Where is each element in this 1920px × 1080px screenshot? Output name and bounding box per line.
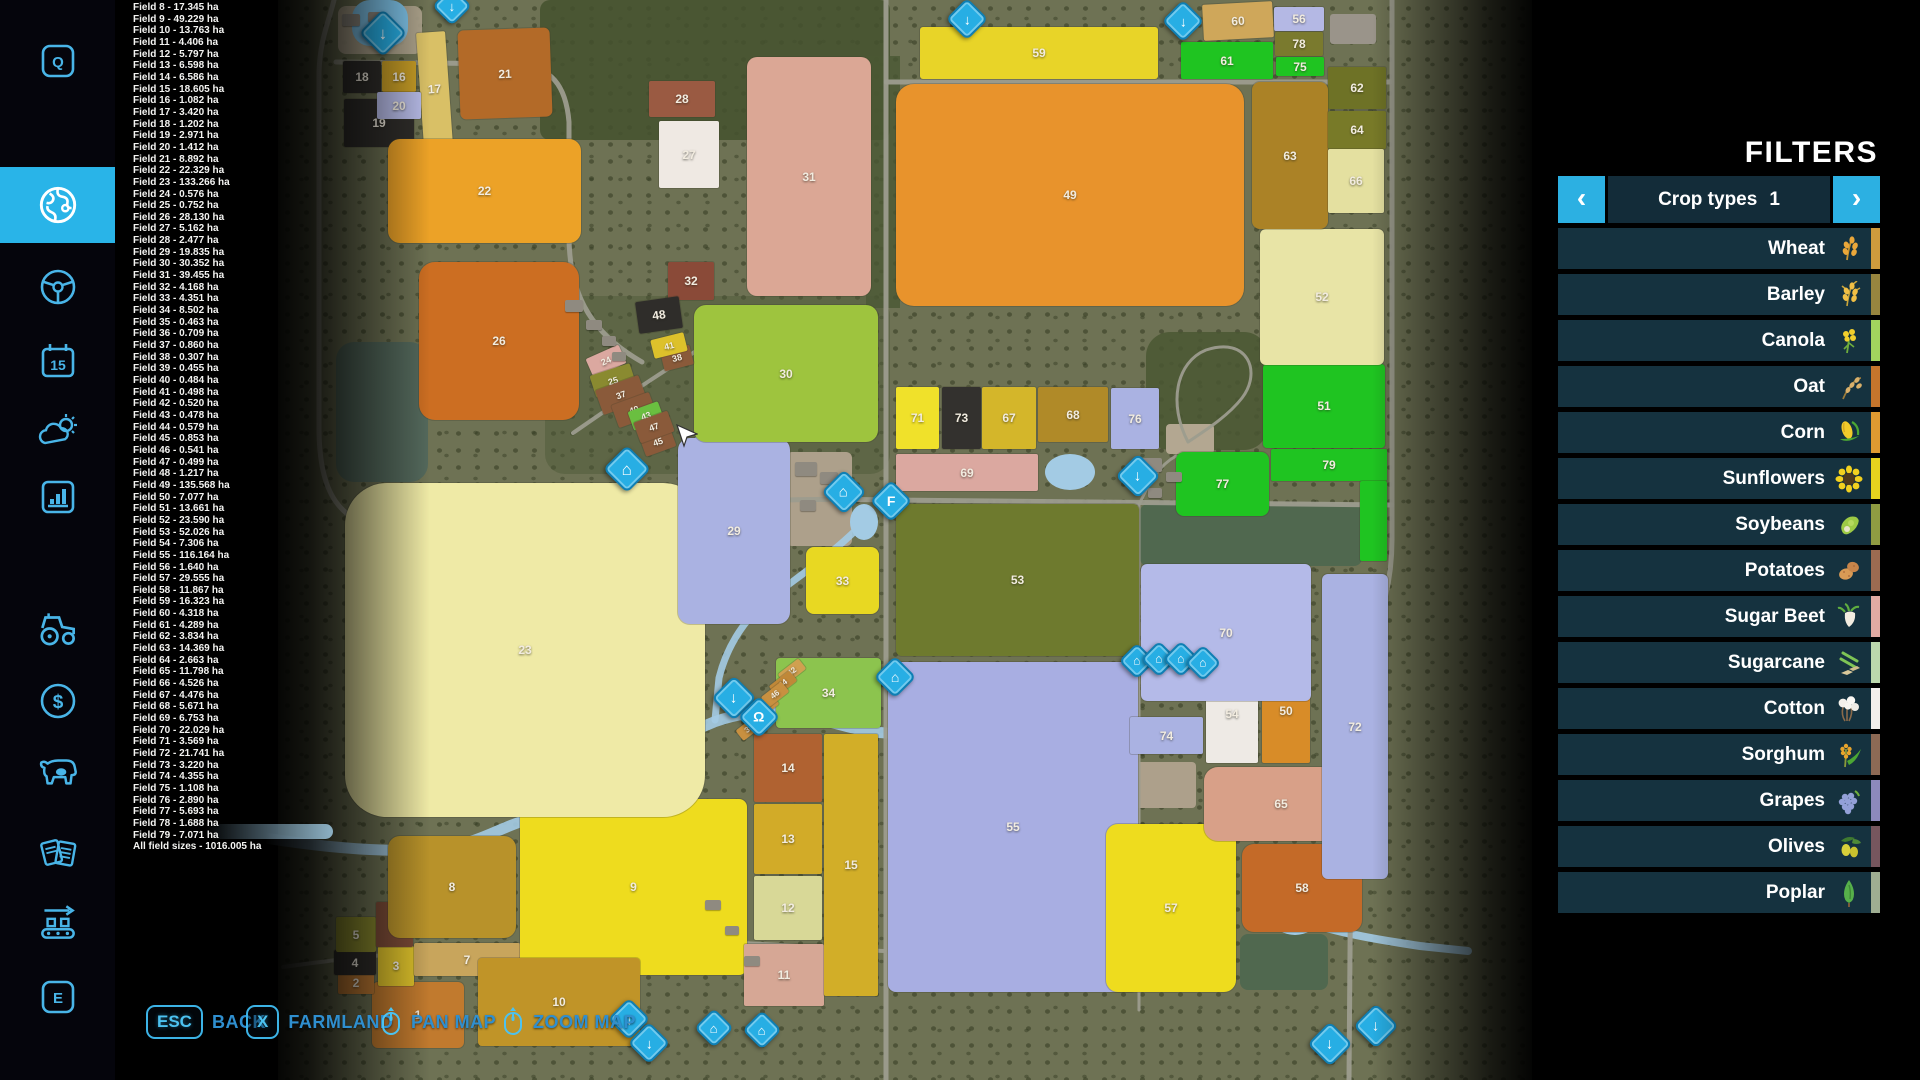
svg-text:15: 15 (50, 357, 66, 373)
map-field-53[interactable]: 53 (896, 504, 1139, 656)
map-field-61[interactable]: 61 (1181, 42, 1273, 79)
filter-row-oat[interactable]: Oat (1558, 366, 1880, 407)
map-field-11[interactable]: 11 (744, 944, 824, 1006)
field-size-item: Field 62 - 3.834 ha (133, 631, 261, 643)
field-number: 29 (678, 438, 790, 624)
crop-label: Sunflowers (1723, 468, 1825, 490)
map-field-51[interactable]: 51 (1263, 364, 1385, 448)
filter-row-soybeans[interactable]: Soybeans (1558, 504, 1880, 545)
building (705, 900, 721, 910)
crop-color-stripe (1871, 458, 1880, 499)
map-field-63[interactable]: 63 (1252, 82, 1328, 229)
marker-glyph: Ω (753, 710, 764, 724)
control-label: ZOOM MAP (533, 1012, 636, 1033)
field-number: 21 (457, 27, 552, 119)
field-size-item: Field 39 - 0.455 ha (133, 363, 261, 375)
field-number: 13 (754, 804, 822, 874)
calendar-icon: 15 (35, 338, 81, 384)
sidebar-item-hotkey-q[interactable]: Q (0, 30, 115, 92)
field-size-item: Field 58 - 11.867 ha (133, 585, 261, 597)
field-size-item: Field 16 - 1.082 ha (133, 95, 261, 107)
map-field-60[interactable]: 60 (1202, 1, 1274, 41)
field-size-item: Field 38 - 0.307 ha (133, 352, 261, 364)
field-size-item: Field 19 - 2.971 ha (133, 130, 261, 142)
sidebar-item-contracts[interactable] (0, 822, 115, 884)
field-number: 5 (336, 917, 376, 952)
field-size-item: Field 18 - 1.202 ha (133, 119, 261, 131)
crop-color-stripe (1871, 780, 1880, 821)
map-field[interactable] (1360, 481, 1387, 561)
field-size-list: Field 8 - 17.345 haField 9 - 49.229 haFi… (133, 2, 261, 853)
field-size-item: Field 30 - 30.352 ha (133, 258, 261, 270)
svg-text:Q: Q (52, 54, 64, 71)
pond (1045, 454, 1095, 490)
field-number: 71 (896, 387, 939, 449)
sugarcane-icon (1835, 649, 1863, 677)
map-field-15[interactable]: 15 (824, 734, 878, 996)
filter-category-label: Crop types (1658, 189, 1757, 211)
field-size-item: Field 9 - 49.229 ha (133, 14, 261, 26)
field-number: 26 (419, 262, 579, 420)
field-size-item: Field 53 - 52.026 ha (133, 527, 261, 539)
field-size-item: Field 57 - 29.555 ha (133, 573, 261, 585)
field-number: 2 (338, 972, 374, 994)
steering-wheel-icon (35, 264, 81, 310)
corn-icon (1835, 419, 1863, 447)
field-number: 18 (343, 61, 381, 93)
map-field-48[interactable]: 48 (635, 296, 683, 334)
marker-glyph: ⌂ (1199, 657, 1206, 669)
field-size-item: Field 27 - 5.162 ha (133, 223, 261, 235)
crop-label: Cotton (1764, 698, 1825, 720)
sidebar-item-garage[interactable] (0, 598, 115, 660)
pond (850, 504, 878, 540)
q-key-icon: Q (35, 38, 81, 84)
field-number: 49 (896, 84, 1244, 306)
sidebar-item-hotkey-e[interactable]: E (0, 966, 115, 1028)
field-size-item: Field 47 - 0.499 ha (133, 457, 261, 469)
field-number: 68 (1038, 387, 1108, 442)
field-number: 63 (1252, 82, 1328, 229)
map-field-62[interactable]: 62 (1328, 67, 1386, 109)
filter-row-sorghum[interactable]: Sorghum (1558, 734, 1880, 775)
crop-color-stripe (1871, 366, 1880, 407)
crop-color-stripe (1871, 642, 1880, 683)
map-field-18[interactable]: 18 (343, 61, 381, 93)
field-size-item: Field 52 - 23.590 ha (133, 515, 261, 527)
sidebar-item-statistics[interactable] (0, 466, 115, 528)
cotton-icon (1835, 695, 1863, 723)
filter-prev-button[interactable]: ‹ (1558, 176, 1605, 223)
map-field-66[interactable]: 66 (1328, 149, 1384, 213)
map-field-12[interactable]: 12 (754, 876, 822, 940)
map-field-69[interactable]: 69 (896, 454, 1038, 491)
zoom-map-control[interactable]: ZOOM MAP (502, 1000, 636, 1044)
sidebar-item-weather[interactable] (0, 402, 115, 464)
chevron-right-icon: › (1852, 182, 1861, 214)
control-label: FARMLAND (288, 1012, 393, 1033)
field-size-item: Field 48 - 1.217 ha (133, 468, 261, 480)
marker-glyph: ↓ (1180, 14, 1187, 28)
filter-category-page: 1 (1769, 189, 1780, 211)
sunflowers-icon (1835, 465, 1863, 493)
field-size-item: Field 69 - 6.753 ha (133, 713, 261, 725)
filter-row-sugarcane[interactable]: Sugarcane (1558, 642, 1880, 683)
field-size-item: Field 73 - 3.220 ha (133, 760, 261, 772)
marker-glyph: ⌂ (891, 670, 899, 684)
field-number: 62 (1328, 67, 1386, 109)
field-size-item: Field 64 - 2.663 ha (133, 655, 261, 667)
field-number: 14 (754, 734, 822, 802)
building (342, 14, 360, 26)
filter-row-wheat[interactable]: Wheat (1558, 228, 1880, 269)
control-label: PAN MAP (411, 1012, 496, 1033)
building (565, 300, 583, 312)
field-number: 52 (1260, 229, 1384, 365)
crop-color-stripe (1871, 412, 1880, 453)
field-size-item: Field 10 - 13.763 ha (133, 25, 261, 37)
field-size-item: Field 23 - 133.266 ha (133, 177, 261, 189)
field-size-item: Field 20 - 1.412 ha (133, 142, 261, 154)
field-number: 22 (388, 139, 581, 243)
map-field-3[interactable]: 3 (378, 946, 414, 986)
field-size-item: Field 36 - 0.709 ha (133, 328, 261, 340)
field-size-item: Field 77 - 5.693 ha (133, 806, 261, 818)
filter-next-button[interactable]: › (1833, 176, 1880, 223)
marker-glyph: ⌂ (622, 461, 632, 478)
filter-row-sugar-beet[interactable]: Sugar Beet (1558, 596, 1880, 637)
building (602, 336, 616, 346)
sidebar-item-map[interactable] (0, 167, 115, 243)
map-field-68[interactable]: 68 (1038, 387, 1108, 442)
crop-label: Soybeans (1735, 514, 1825, 536)
crop-label: Barley (1767, 284, 1825, 306)
marker-glyph: ↓ (379, 25, 388, 42)
filter-row-cotton[interactable]: Cotton (1558, 688, 1880, 729)
field-number: 70 (1141, 564, 1311, 701)
field-number: 9 (520, 799, 747, 975)
sidebar-item-production[interactable] (0, 892, 115, 954)
filter-row-potatoes[interactable]: Potatoes (1558, 550, 1880, 591)
crop-label: Sorghum (1742, 744, 1825, 766)
field-size-item: Field 66 - 4.526 ha (133, 678, 261, 690)
filter-row-grapes[interactable]: Grapes (1558, 780, 1880, 821)
field-size-item: Field 43 - 0.478 ha (133, 410, 261, 422)
field-size-item: Field 54 - 7.306 ha (133, 538, 261, 550)
field-size-item: Field 33 - 4.351 ha (133, 293, 261, 305)
map-field-57[interactable]: 57 (1106, 824, 1236, 992)
map-field-32[interactable]: 32 (668, 262, 714, 300)
field-number: 75 (1276, 57, 1324, 76)
field-number: 3 (378, 946, 414, 986)
field-size-item: Field 34 - 8.502 ha (133, 305, 261, 317)
map-field-20[interactable]: 20 (377, 92, 421, 119)
map-field-8[interactable]: 8 (388, 836, 516, 938)
field-size-item: Field 59 - 16.323 ha (133, 596, 261, 608)
field-number: 32 (668, 262, 714, 300)
field-size-item: Field 32 - 4.168 ha (133, 282, 261, 294)
map-field-22[interactable]: 22 (388, 139, 581, 243)
building (725, 926, 739, 935)
statistics-icon (35, 474, 81, 520)
field-number: 76 (1111, 388, 1159, 449)
crop-label: Olives (1768, 836, 1825, 858)
field-number: 55 (888, 662, 1138, 992)
marker-glyph: ⌂ (1177, 653, 1184, 665)
mouse-icon (380, 1007, 402, 1037)
crop-label: Canola (1762, 330, 1825, 352)
map-field-72[interactable]: 72 (1322, 574, 1388, 879)
animals-icon (34, 749, 82, 797)
map-field-28[interactable]: 28 (649, 81, 715, 117)
map-field-5[interactable]: 5 (336, 917, 376, 952)
field-size-item: Field 79 - 7.071 ha (133, 830, 261, 842)
field-number: 12 (754, 876, 822, 940)
field-size-item: Field 46 - 0.541 ha (133, 445, 261, 457)
field-size-item: Field 44 - 0.579 ha (133, 422, 261, 434)
field-number: 8 (388, 836, 516, 938)
map-field-23[interactable]: 23 (345, 483, 705, 817)
map-field-30[interactable]: 30 (694, 305, 878, 442)
field-size-total: All field sizes - 1016.005 ha (133, 841, 261, 853)
field-size-item: Field 78 - 1.688 ha (133, 818, 261, 830)
field-number: 20 (377, 92, 421, 119)
field-size-item: Field 14 - 6.586 ha (133, 72, 261, 84)
field-size-item: Field 26 - 28.130 ha (133, 212, 261, 224)
building (612, 352, 626, 361)
field-number: 23 (345, 483, 705, 817)
field-size-item: Field 68 - 5.671 ha (133, 701, 261, 713)
filter-row-sunflowers[interactable]: Sunflowers (1558, 458, 1880, 499)
map-field-71[interactable]: 71 (896, 387, 939, 449)
field-size-item: Field 72 - 21.741 ha (133, 748, 261, 760)
field-size-item: Field 70 - 22.029 ha (133, 725, 261, 737)
potatoes-icon (1835, 557, 1863, 585)
field-size-item: Field 49 - 135.568 ha (133, 480, 261, 492)
field-size-item: Field 12 - 5.797 ha (133, 49, 261, 61)
map-field-14[interactable]: 14 (754, 734, 822, 802)
field-number: 66 (1328, 149, 1384, 213)
field-size-item: Field 22 - 22.329 ha (133, 165, 261, 177)
field-size-item: Field 11 - 4.406 ha (133, 37, 261, 49)
field-number: 16 (382, 61, 416, 92)
crop-label: Wheat (1768, 238, 1825, 260)
field-number: 59 (920, 27, 1158, 79)
marker-glyph: ⌂ (1133, 655, 1140, 667)
field-number: 79 (1271, 449, 1387, 481)
building (744, 956, 760, 966)
map-field-27[interactable]: 27 (659, 121, 719, 188)
soybeans-icon (1835, 511, 1863, 539)
field-number: 51 (1263, 364, 1385, 448)
map-field-67[interactable]: 67 (982, 387, 1036, 449)
oat-icon (1835, 373, 1863, 401)
filter-row-barley[interactable]: Barley (1558, 274, 1880, 315)
crop-color-stripe (1871, 274, 1880, 315)
filter-category-nav: ‹ Crop types 1 › (1558, 176, 1880, 223)
mouse-cursor (676, 424, 698, 448)
road (1177, 347, 1251, 442)
field-number: 15 (824, 734, 878, 996)
field-size-item: Field 74 - 4.355 ha (133, 771, 261, 783)
crop-label: Sugar Beet (1725, 606, 1825, 628)
field-number: 67 (982, 387, 1036, 449)
map-field-29[interactable]: 29 (678, 438, 790, 624)
field-number: 74 (1130, 717, 1203, 754)
chevron-left-icon: ‹ (1577, 182, 1586, 214)
crop-color-stripe (1871, 504, 1880, 545)
crop-color-stripe (1871, 826, 1880, 867)
crop-color-stripe (1871, 872, 1880, 913)
filter-row-corn[interactable]: Corn (1558, 412, 1880, 453)
farmland-control[interactable]: XFARMLAND (246, 1000, 393, 1044)
building (800, 500, 816, 511)
crop-label: Grapes (1760, 790, 1825, 812)
marker-glyph: ⌂ (1155, 653, 1162, 665)
sidebar-menu: Q15$E (0, 0, 115, 1080)
map-field-16[interactable]: 16 (382, 61, 416, 92)
filters-title: FILTERS (1745, 136, 1878, 170)
field-number: 48 (635, 296, 683, 334)
field-size-item: Field 50 - 7.077 ha (133, 492, 261, 504)
field-number: 69 (896, 454, 1038, 491)
map-field-49[interactable]: 49 (896, 84, 1244, 306)
field-size-item: Field 67 - 4.476 ha (133, 690, 261, 702)
map-field-70[interactable]: 70 (1141, 564, 1311, 701)
barley-icon (1835, 281, 1863, 309)
map-field-2[interactable]: 2 (338, 972, 374, 994)
crop-label: Potatoes (1745, 560, 1825, 582)
field-number: 56 (1274, 7, 1324, 31)
field-size-item: Field 17 - 3.420 ha (133, 107, 261, 119)
marker-glyph: ↓ (1134, 469, 1142, 484)
map-field-77[interactable]: 77 (1176, 452, 1269, 516)
map-field-52[interactable]: 52 (1260, 229, 1384, 365)
field-size-item: Field 21 - 8.892 ha (133, 154, 261, 166)
crop-label: Poplar (1766, 882, 1825, 904)
mouse-icon (502, 1007, 524, 1037)
wheat-icon (1835, 235, 1863, 263)
field-size-item: Field 71 - 3.569 ha (133, 736, 261, 748)
contracts-icon (34, 829, 82, 877)
filter-row-canola[interactable]: Canola (1558, 320, 1880, 361)
field-size-item: Field 61 - 4.289 ha (133, 620, 261, 632)
building (1166, 472, 1182, 482)
crop-color-stripe (1871, 228, 1880, 269)
map-field-78[interactable]: 78 (1275, 32, 1323, 56)
svg-text:E: E (52, 990, 62, 1007)
field-number: 53 (896, 504, 1139, 656)
map-field-9[interactable]: 9 (520, 799, 747, 975)
field-size-item: Field 75 - 1.108 ha (133, 783, 261, 795)
map-field-74[interactable]: 74 (1130, 717, 1203, 754)
production-icon (34, 899, 82, 947)
field-size-item: Field 8 - 17.345 ha (133, 2, 261, 14)
field-size-item: Field 45 - 0.853 ha (133, 433, 261, 445)
map-field-21[interactable]: 21 (457, 27, 552, 119)
map-field-33[interactable]: 33 (806, 547, 879, 614)
field-number: 64 (1328, 111, 1386, 149)
map-field-79[interactable]: 79 (1271, 449, 1387, 481)
map-field-13[interactable]: 13 (754, 804, 822, 874)
field-size-item: Field 29 - 19.835 ha (133, 247, 261, 259)
filter-category[interactable]: Crop types 1 (1608, 176, 1830, 223)
field-size-item: Field 35 - 0.463 ha (133, 317, 261, 329)
field-size-item: Field 76 - 2.890 ha (133, 795, 261, 807)
key-x: X (246, 1005, 279, 1039)
field-size-item: Field 41 - 0.498 ha (133, 387, 261, 399)
marker-glyph: ⌂ (839, 485, 848, 500)
sidebar-item-vehicles-overview[interactable] (0, 256, 115, 318)
field-size-item: Field 56 - 1.640 ha (133, 562, 261, 574)
filter-row-poplar[interactable]: Poplar (1558, 872, 1880, 913)
field-number: 78 (1275, 32, 1323, 56)
building (586, 320, 602, 330)
field-number: 57 (1106, 824, 1236, 992)
map-field-26[interactable]: 26 (419, 262, 579, 420)
field-number: 11 (744, 944, 824, 1006)
sidebar-item-finances[interactable]: $ (0, 670, 115, 732)
field-size-item: Field 60 - 4.318 ha (133, 608, 261, 620)
field-number: 31 (747, 57, 871, 296)
field-number: 73 (942, 387, 981, 449)
field-number: 61 (1181, 42, 1273, 79)
field-size-item: Field 63 - 14.369 ha (133, 643, 261, 655)
farming-simulator-map-screen: 1234567891011121314151617181920212223242… (0, 0, 1920, 1080)
canola-icon (1835, 327, 1863, 355)
marker-glyph: ↓ (449, 0, 456, 13)
map-field-56[interactable]: 56 (1274, 7, 1324, 31)
crop-color-stripe (1871, 596, 1880, 637)
map-field-75[interactable]: 75 (1276, 57, 1324, 76)
field-size-item: Field 31 - 39.455 ha (133, 270, 261, 282)
crop-color-stripe (1871, 734, 1880, 775)
filter-row-olives[interactable]: Olives (1558, 826, 1880, 867)
field-size-item: Field 40 - 0.484 ha (133, 375, 261, 387)
weather-icon (35, 410, 81, 456)
map-icon (34, 181, 82, 229)
map-field-73[interactable]: 73 (942, 387, 981, 449)
crop-label: Corn (1781, 422, 1825, 444)
field-number: 60 (1202, 1, 1274, 41)
sorghum-icon (1835, 741, 1863, 769)
field-size-item: Field 28 - 2.477 ha (133, 235, 261, 247)
crop-label: Sugarcane (1728, 652, 1825, 674)
field-number: 30 (694, 305, 878, 442)
field-number: 33 (806, 547, 879, 614)
map-field-31[interactable]: 31 (747, 57, 871, 296)
field-number: 27 (659, 121, 719, 188)
e-key-icon: E (35, 974, 81, 1020)
crop-color-stripe (1871, 688, 1880, 729)
field-number: 72 (1322, 574, 1388, 879)
map-field-4[interactable]: 4 (334, 950, 376, 975)
pan-map-control[interactable]: PAN MAP (380, 1000, 496, 1044)
field-size-item: Field 55 - 116.164 ha (133, 550, 261, 562)
sidebar-item-calendar[interactable]: 15 (0, 330, 115, 392)
poplar-icon (1835, 879, 1863, 907)
map-field-64[interactable]: 64 (1328, 111, 1386, 149)
field-size-item: Field 65 - 11.798 ha (133, 666, 261, 678)
building (1148, 488, 1162, 498)
map-field-76[interactable]: 76 (1111, 388, 1159, 449)
sidebar-item-animals[interactable] (0, 742, 115, 804)
map-field-59[interactable]: 59 (920, 27, 1158, 79)
crop-label: Oat (1793, 376, 1825, 398)
map-field-55[interactable]: 55 (888, 662, 1138, 992)
filter-rows: WheatBarleyCanolaOatCornSunflowersSoybea… (1558, 228, 1880, 918)
field-size-item: Field 25 - 0.752 ha (133, 200, 261, 212)
